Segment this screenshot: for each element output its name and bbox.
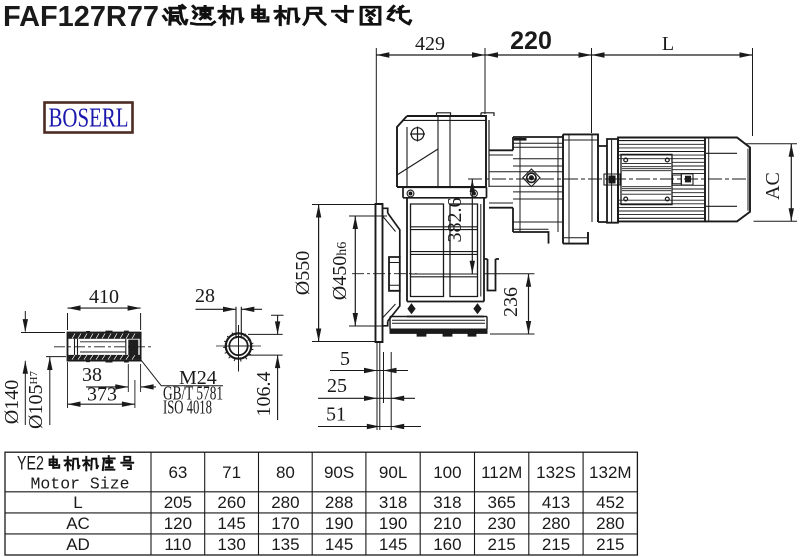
svg-text:L: L <box>662 33 674 55</box>
svg-text:28: 28 <box>195 285 215 307</box>
svg-text:132S: 132S <box>536 463 576 482</box>
svg-text:AC: AC <box>762 172 784 200</box>
svg-text:318: 318 <box>433 493 461 512</box>
svg-text:132M: 132M <box>589 463 632 482</box>
svg-text:230: 230 <box>488 514 516 533</box>
svg-text:FAF127R77: FAF127R77 <box>3 1 159 33</box>
svg-text:BOSERL: BOSERL <box>49 103 129 133</box>
svg-text:AD: AD <box>66 535 90 554</box>
svg-text:106.4: 106.4 <box>253 372 275 417</box>
svg-text:236: 236 <box>500 287 522 317</box>
svg-text:5: 5 <box>340 348 350 370</box>
svg-text:110: 110 <box>164 535 191 554</box>
svg-text:Ø140: Ø140 <box>1 380 23 424</box>
svg-text:90L: 90L <box>379 463 407 482</box>
svg-text:145: 145 <box>217 514 245 533</box>
svg-text:280: 280 <box>271 493 299 512</box>
svg-text:AC: AC <box>66 514 90 533</box>
svg-text:215: 215 <box>542 535 570 554</box>
svg-text:318: 318 <box>379 493 407 512</box>
svg-text:220: 220 <box>510 27 552 55</box>
svg-text:280: 280 <box>542 514 570 533</box>
svg-text:25: 25 <box>327 375 347 397</box>
svg-text:130: 130 <box>217 535 245 554</box>
svg-text:215: 215 <box>488 535 516 554</box>
svg-text:51: 51 <box>326 404 346 426</box>
svg-text:100: 100 <box>433 463 461 482</box>
svg-text:145: 145 <box>325 535 353 554</box>
svg-text:452: 452 <box>596 493 624 512</box>
svg-text:215: 215 <box>596 535 624 554</box>
svg-text:80: 80 <box>276 463 295 482</box>
svg-text:ISO 4018: ISO 4018 <box>163 397 212 419</box>
svg-text:382.6: 382.6 <box>444 198 466 243</box>
svg-text:205: 205 <box>164 493 192 512</box>
svg-text:190: 190 <box>379 514 407 533</box>
svg-text:413: 413 <box>542 493 570 512</box>
svg-text:160: 160 <box>433 535 461 554</box>
svg-text:63: 63 <box>168 463 187 482</box>
svg-text:210: 210 <box>433 514 461 533</box>
svg-text:145: 145 <box>379 535 407 554</box>
svg-text:260: 260 <box>217 493 245 512</box>
svg-text:190: 190 <box>325 514 353 533</box>
svg-text:90S: 90S <box>324 463 354 482</box>
svg-text:429: 429 <box>415 33 445 55</box>
svg-text:365: 365 <box>488 493 516 512</box>
svg-text:L: L <box>73 493 82 512</box>
svg-text:280: 280 <box>596 514 624 533</box>
svg-text:373: 373 <box>87 384 117 406</box>
svg-text:112M: 112M <box>481 463 522 482</box>
svg-text:410: 410 <box>89 286 119 308</box>
svg-text:71: 71 <box>222 463 241 482</box>
svg-text:YE2: YE2 <box>17 454 44 475</box>
svg-text:135: 135 <box>271 535 299 554</box>
svg-text:288: 288 <box>325 493 353 512</box>
svg-text:170: 170 <box>271 514 299 533</box>
svg-text:Ø550: Ø550 <box>292 251 314 295</box>
svg-text:Motor Size: Motor Size <box>30 475 129 494</box>
svg-text:120: 120 <box>164 514 192 533</box>
